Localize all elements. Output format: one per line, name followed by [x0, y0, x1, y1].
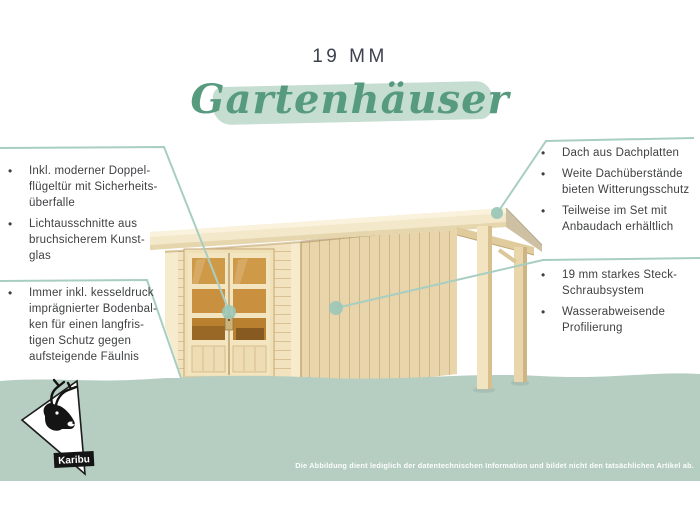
feature-item: • Wasserabweisende Profilierung — [541, 304, 700, 336]
door-window-pane — [233, 289, 266, 313]
door-lock — [225, 316, 233, 330]
feature-line: Lichtausschnitte aus — [29, 216, 145, 232]
canopy-brace — [499, 250, 516, 262]
callout-right-bottom: • 19 mm starkes Steck- Schraubsystem • W… — [541, 267, 700, 341]
feature-line: Teilweise im Set mit — [562, 203, 673, 219]
callout-left-bottom: • Immer inkl. kesseldruck imprägnierter … — [8, 285, 180, 370]
feature-item: • Weite Dachüberstände bieten Witterungs… — [541, 166, 700, 198]
feature-line: Inkl. moderner Doppel- — [29, 163, 158, 179]
feature-line: überfalle — [29, 195, 158, 211]
side-wall — [301, 226, 457, 392]
feature-line: tigen Schutz gegen — [29, 333, 157, 349]
house-body — [165, 226, 457, 392]
feature-line: aufsteigende Fäulnis — [29, 349, 157, 365]
karibu-brand-text: Karibu — [58, 454, 90, 467]
feature-item: • Immer inkl. kesseldruck imprägnierter … — [8, 285, 180, 365]
feature-line: Anbaudach erhältlich — [562, 219, 673, 235]
feature-line: ken für einen langfris- — [29, 317, 157, 333]
feature-line: Wasserabweisende — [562, 304, 665, 320]
bullet-dot: • — [541, 166, 562, 198]
feature-item: • Lichtausschnitte aus bruchsicherem Kun… — [8, 216, 184, 264]
callout-right-top: • Dach aus Dachplatten • Weite Dachübers… — [541, 145, 700, 240]
size-headline: 19 MM — [0, 46, 700, 68]
feature-line: Immer inkl. kesseldruck — [29, 285, 157, 301]
feature-line: glas — [29, 248, 145, 264]
feature-item: • 19 mm starkes Steck- Schraubsystem — [541, 267, 700, 299]
double-door — [184, 249, 274, 381]
bullet-dot: • — [541, 203, 562, 235]
feature-line: Weite Dachüberstände — [562, 166, 689, 182]
bullet-dot: • — [8, 285, 29, 365]
feature-line: imprägnierter Bodenbal- — [29, 301, 157, 317]
bullet-dot: • — [541, 267, 562, 299]
legal-disclaimer: Die Abbildung dient lediglich der datent… — [295, 461, 694, 470]
feature-line: bruchsicherem Kunst- — [29, 232, 145, 248]
bullet-dot: • — [8, 216, 29, 264]
door-window-pane — [192, 289, 225, 313]
feature-line: Dach aus Dachplatten — [562, 145, 679, 161]
product-infographic: Karibu 19 MM Gartenhäuser • Inkl. modern… — [0, 0, 700, 525]
feature-line: Schraubsystem — [562, 283, 677, 299]
canopy-posts — [473, 226, 529, 393]
bullet-dot: • — [8, 163, 29, 211]
feature-item: • Inkl. moderner Doppel- flügeltür mit S… — [8, 163, 184, 211]
callout-left-top: • Inkl. moderner Doppel- flügeltür mit S… — [8, 163, 184, 269]
bullet-dot: • — [541, 145, 562, 161]
feature-line: flügeltür mit Sicherheits- — [29, 179, 158, 195]
karibu-label: Karibu — [54, 451, 95, 468]
feature-line: Profilierung — [562, 320, 665, 336]
page-title: Gartenhäuser — [0, 76, 700, 123]
bullet-dot: • — [541, 304, 562, 336]
feature-line: bieten Witterungsschutz — [562, 182, 689, 198]
corner-trim-right — [291, 242, 301, 392]
feature-item: • Teilweise im Set mit Anbaudach erhältl… — [541, 203, 700, 235]
feature-item: • Dach aus Dachplatten — [541, 145, 700, 161]
feature-line: 19 mm starkes Steck- — [562, 267, 677, 283]
